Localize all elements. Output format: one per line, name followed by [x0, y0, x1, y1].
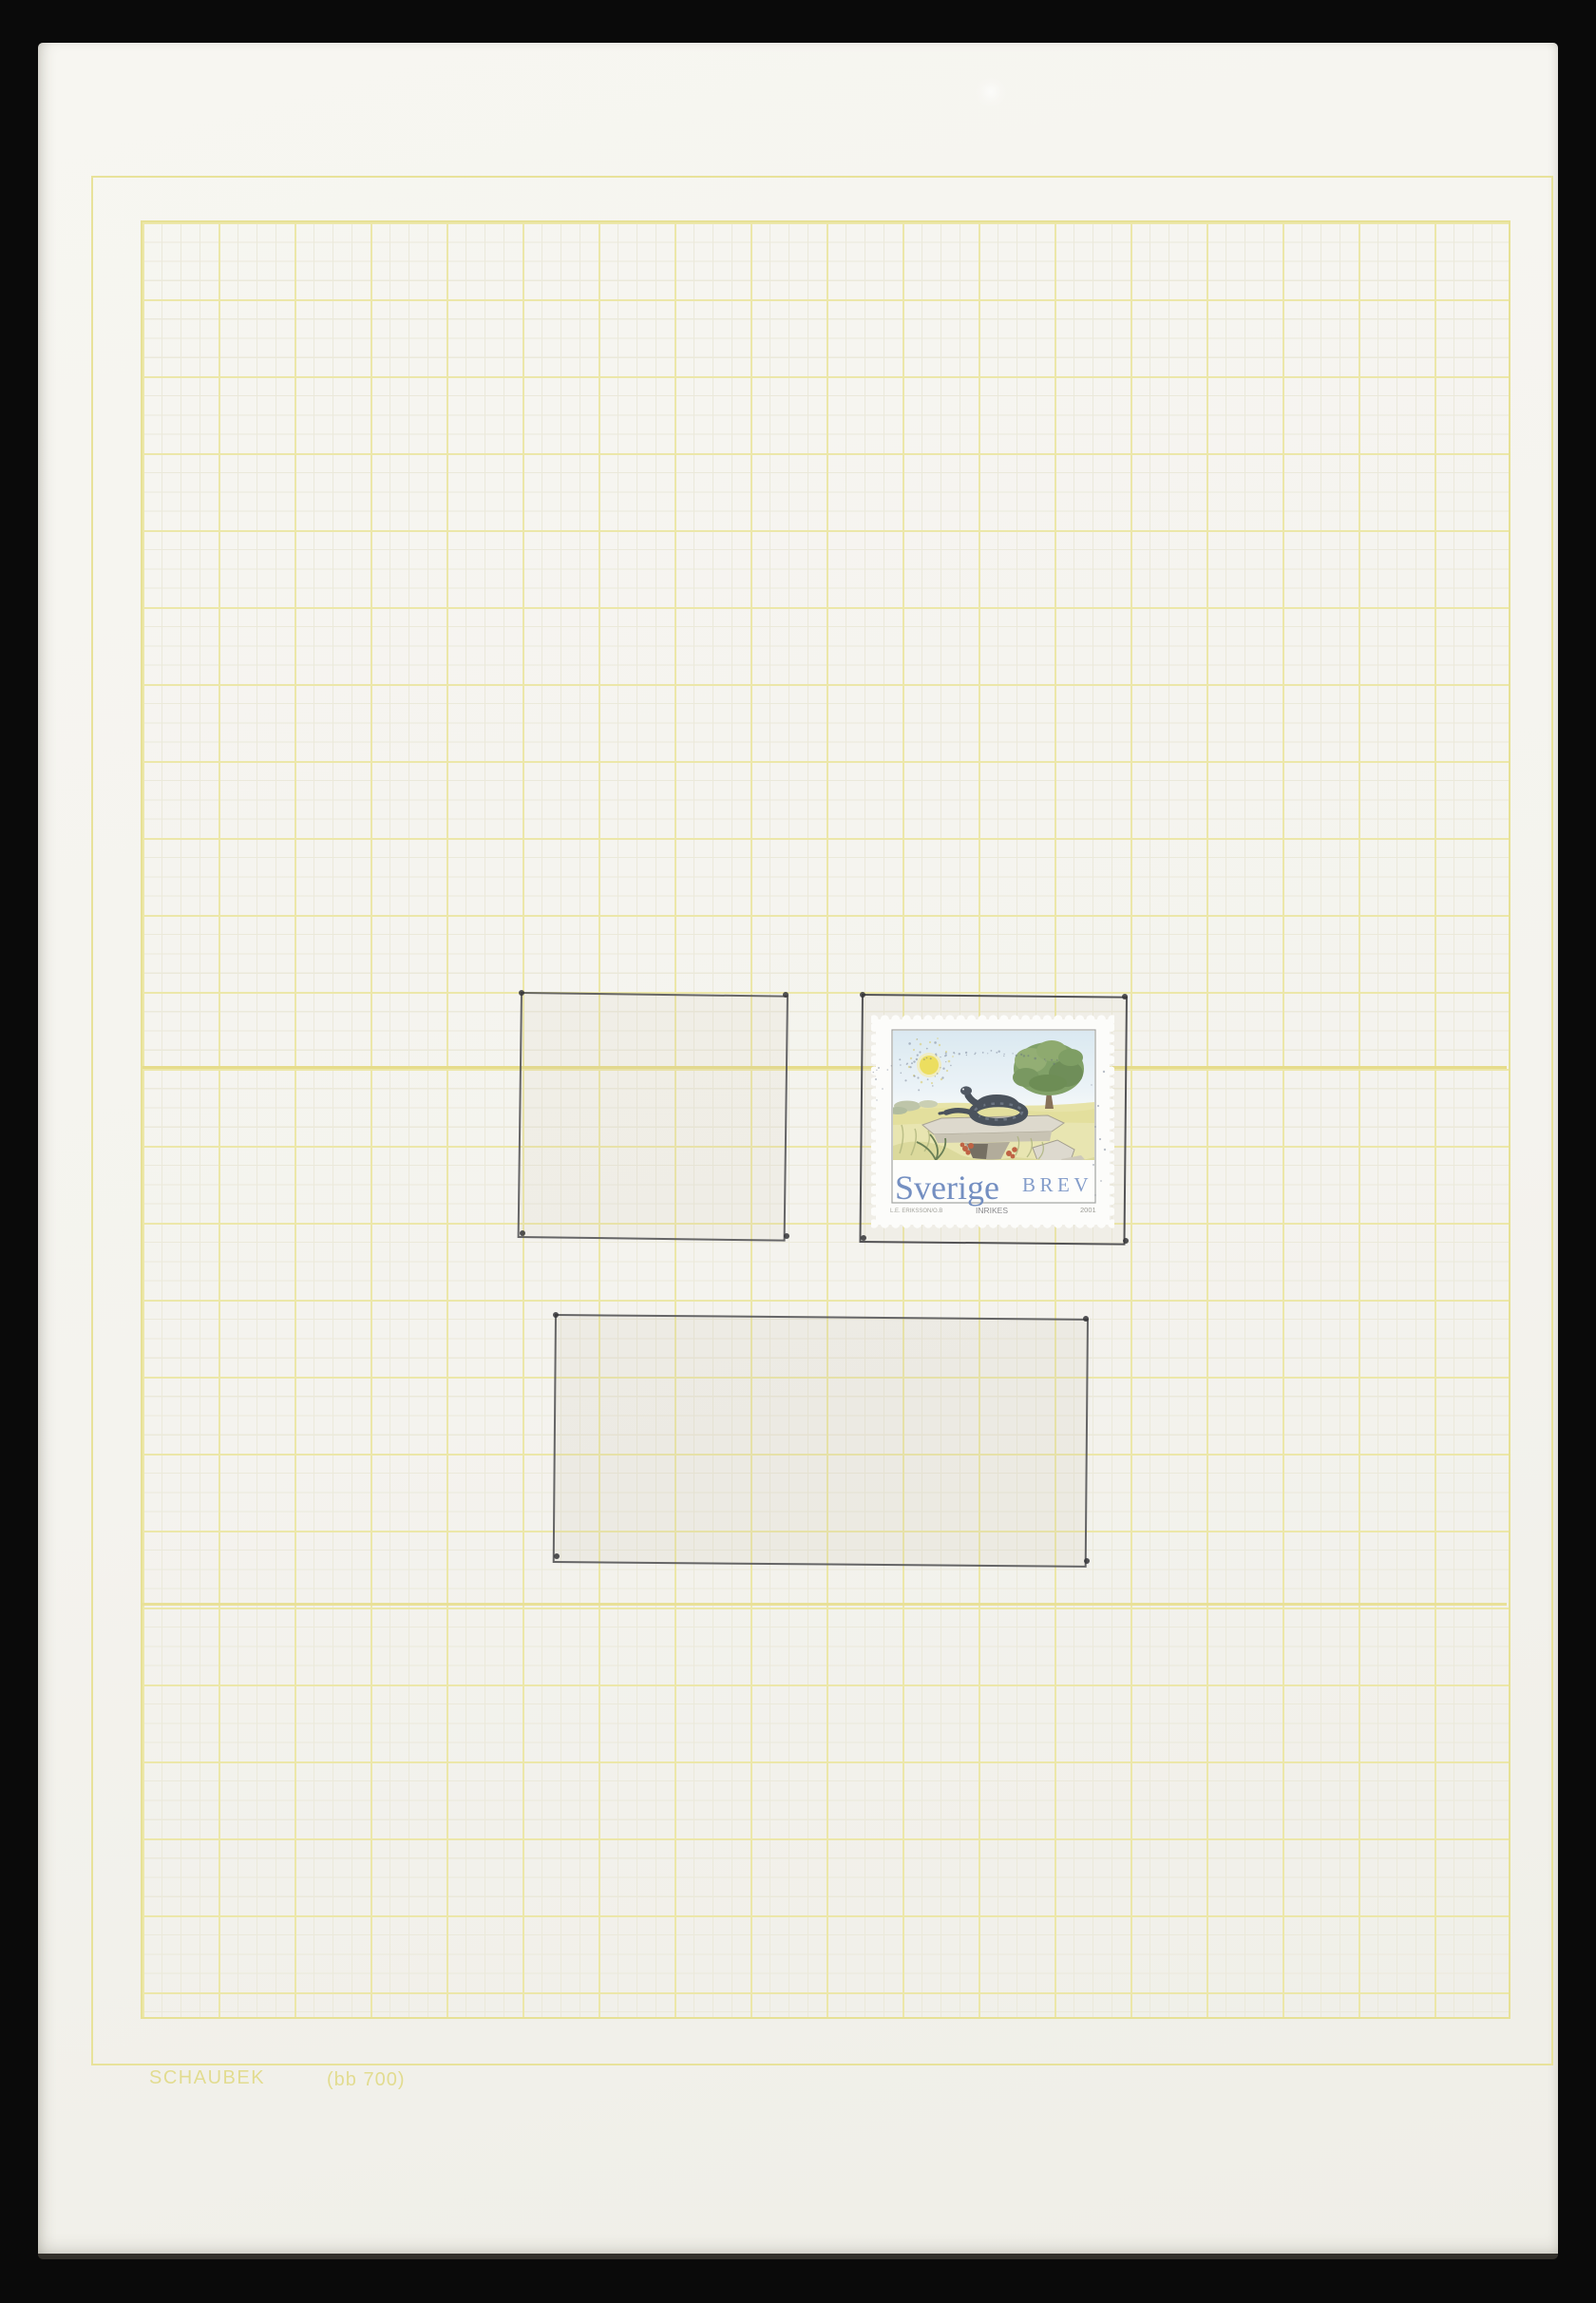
svg-text:INRIKES: INRIKES: [976, 1206, 1008, 1215]
svg-text:BREV: BREV: [1022, 1173, 1092, 1196]
svg-text:Sverige: Sverige: [895, 1169, 999, 1207]
svg-text:2001: 2001: [1080, 1206, 1096, 1214]
svg-text:L.E. ERIKSSON/O.B: L.E. ERIKSSON/O.B: [890, 1209, 942, 1214]
